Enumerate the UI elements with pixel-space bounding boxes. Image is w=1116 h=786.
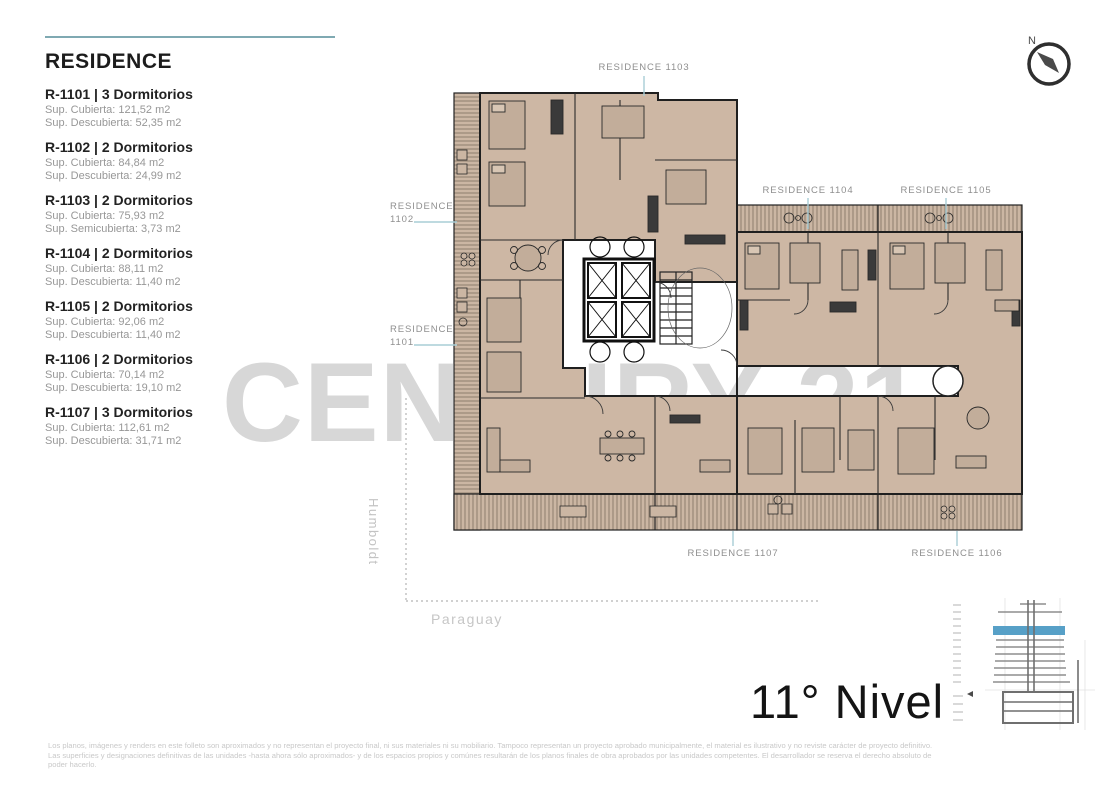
residence-sidebar: RESIDENCE R-1101 | 3 Dormitorios Sup. Cu… [45, 36, 345, 457]
brochure-page: { "sidebar": { "title": "RESIDENCE", "re… [0, 0, 1116, 786]
disclaimer: Los planos, imágenes y renders en este f… [48, 741, 932, 770]
elevator-core [584, 237, 654, 362]
building-elevation [953, 598, 1095, 730]
plan-label-1105: RESIDENCE 1105 [900, 185, 991, 196]
street-label-humboldt: Humboldt [366, 498, 381, 566]
disclaimer-line: poder hacerlo. [48, 760, 932, 770]
plan-label-1106: RESIDENCE 1106 [911, 548, 1002, 559]
residence-entry: R-1101 | 3 Dormitorios Sup. Cubierta: 12… [45, 86, 345, 130]
disclaimer-line: Los planos, imágenes y renders en este f… [48, 741, 932, 751]
residence-entry: R-1103 | 2 Dormitorios Sup. Cubierta: 75… [45, 192, 345, 236]
accent-rule [45, 36, 335, 38]
street-label-paraguay: Paraguay [431, 611, 503, 627]
plan-label-1107: RESIDENCE 1107 [687, 548, 778, 559]
residence-entry: R-1102 | 2 Dormitorios Sup. Cubierta: 84… [45, 139, 345, 183]
disclaimer-line: Las superficies y designaciones definiti… [48, 751, 932, 761]
page-title: RESIDENCE [45, 50, 345, 74]
plan-label-1103: RESIDENCE 1103 [598, 62, 689, 73]
residence-entry: R-1106 | 2 Dormitorios Sup. Cubierta: 70… [45, 351, 345, 395]
plan-label-1104: RESIDENCE 1104 [762, 185, 853, 196]
level-highlight-band [993, 626, 1065, 635]
residence-entry: R-1105 | 2 Dormitorios Sup. Cubierta: 92… [45, 298, 345, 342]
plan-label-1102: RESIDENCE 1102 [390, 201, 454, 225]
compass-icon [1027, 42, 1070, 85]
compass-north-label: N [1028, 35, 1036, 47]
residence-entry: R-1107 | 3 Dormitorios Sup. Cubierta: 11… [45, 404, 345, 448]
residence-entry: R-1104 | 2 Dormitorios Sup. Cubierta: 88… [45, 245, 345, 289]
plan-label-1101: RESIDENCE 1101 [390, 324, 454, 348]
corridor-column [933, 366, 963, 396]
level-title: 11° Nivel [750, 674, 944, 729]
